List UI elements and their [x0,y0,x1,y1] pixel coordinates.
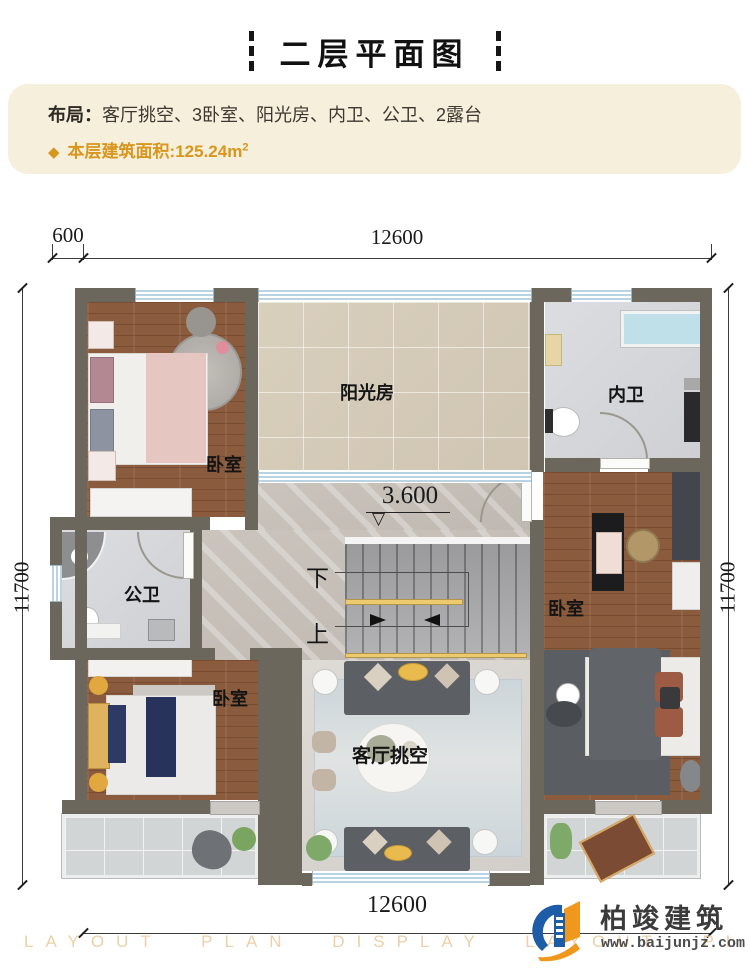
room-label-sunroom: 阳光房 [340,379,394,405]
toilet-tank [545,409,553,433]
wall [62,648,215,660]
bathtub [621,311,705,347]
wall [543,800,595,814]
small-rug [186,307,216,337]
stool [89,773,108,792]
wall [545,458,600,472]
page-title: 二层平面图 [280,29,470,74]
door-leaf [600,458,650,469]
room-label-bedroom-top-left: 卧室 [206,451,242,477]
wall [258,648,302,885]
wardrobe [672,472,700,560]
washer [148,619,175,641]
window [571,288,632,302]
room-label-bath-inner: 内卫 [608,381,644,407]
brand-logo-icon [528,893,598,965]
sofa-table [398,663,428,681]
window [258,288,532,302]
nightstand [88,451,116,481]
area-line: ◆本层建筑面积:125.24m2 [48,137,248,162]
dim-top-left: 600 [40,223,96,248]
pouf [312,769,336,791]
elevation-value: 3.600 [360,482,460,510]
window [135,288,214,302]
layout-value: 客厅挑空、3卧室、阳光房、内卫、公卫、2露台 [102,105,482,125]
brand-logo: 柏竣建筑 www.baijunjz.com [528,893,746,969]
window [50,565,62,602]
closet [90,488,192,517]
pillow [90,357,114,403]
wall [50,600,62,648]
wall [50,517,62,565]
pillow-dark [660,687,680,709]
bed-runner [146,697,176,777]
wall [700,288,712,814]
stair-landing [345,537,530,544]
area-label: 本层建筑面积: [68,142,176,161]
side-table [472,829,498,855]
wall [660,800,700,814]
dim-top: 12600 [337,225,457,250]
window [312,871,490,885]
bath-mat [684,378,700,390]
vanity [545,334,562,366]
diamond-icon: ◆ [48,144,60,161]
info-box: 布局：客厅挑空、3卧室、阳光房、内卫、公卫、2露台 ◆本层建筑面积:125.24… [8,84,741,174]
wall [530,288,544,472]
cushion [216,341,229,354]
wall [245,288,258,530]
stair-up-label: 上 [306,615,329,649]
headboard [88,703,110,769]
floor-plan: 600 12600 11700 11700 12600 [0,195,749,973]
stair-arrow-right-icon [370,614,386,626]
bed-blanket [589,648,661,760]
dim-bottom: 12600 [337,892,457,919]
oval-rug [680,760,702,792]
title-dash-left [249,31,254,71]
stair-arrow-left-icon [424,614,440,626]
pillow [108,705,126,763]
page-header: 二层平面图 [0,26,749,76]
pouf [312,731,336,753]
sliding-door [210,801,260,815]
brand-name: 柏竣建筑 [600,897,728,936]
bath-cabinet [684,392,700,442]
dim-left: 11700 [10,552,35,624]
door-leaf [183,532,194,579]
room-label-bath-public: 公卫 [124,581,160,607]
brand-url: www.baijunjz.com [601,935,745,952]
area-sup: 2 [242,141,248,153]
sliding-door [595,801,662,815]
dresser [672,562,702,610]
stair-rail [345,599,463,605]
room-label-bedroom-right: 卧室 [548,595,584,621]
bed-blanket [146,353,206,463]
desk [596,532,622,574]
layout-line: 布局：客厅挑空、3卧室、阳光房、内卫、公卫、2露台 [48,101,482,127]
title-dash-right [496,31,501,71]
stool [89,676,108,695]
room-label-bedroom-bottom-left: 卧室 [212,685,248,711]
plant [306,835,332,861]
wall [302,873,312,886]
wall [488,873,530,886]
wall [530,520,544,885]
plant [550,823,572,859]
side-table [312,669,338,695]
chair [626,529,660,563]
plant [232,827,256,851]
wall [250,648,258,660]
wall [62,800,210,814]
layout-label: 布局： [48,105,102,125]
pillow [655,707,683,737]
pillow [90,409,114,455]
dim-right: 11700 [716,552,741,624]
stair-rail [345,653,527,658]
wall [75,288,87,814]
sofa-table [384,845,412,861]
wall [648,458,712,472]
room-label-living-void: 客厅挑空 [352,741,428,768]
stair-down-label: 下 [306,559,329,593]
side-table [474,669,500,695]
dim-line-top [52,258,712,259]
pouf [546,701,582,727]
sunroom-floor [258,302,530,470]
area-value: 125.24m [175,142,242,161]
nightstand [88,321,114,349]
elevation-triangle-icon: ▽ [372,509,385,529]
